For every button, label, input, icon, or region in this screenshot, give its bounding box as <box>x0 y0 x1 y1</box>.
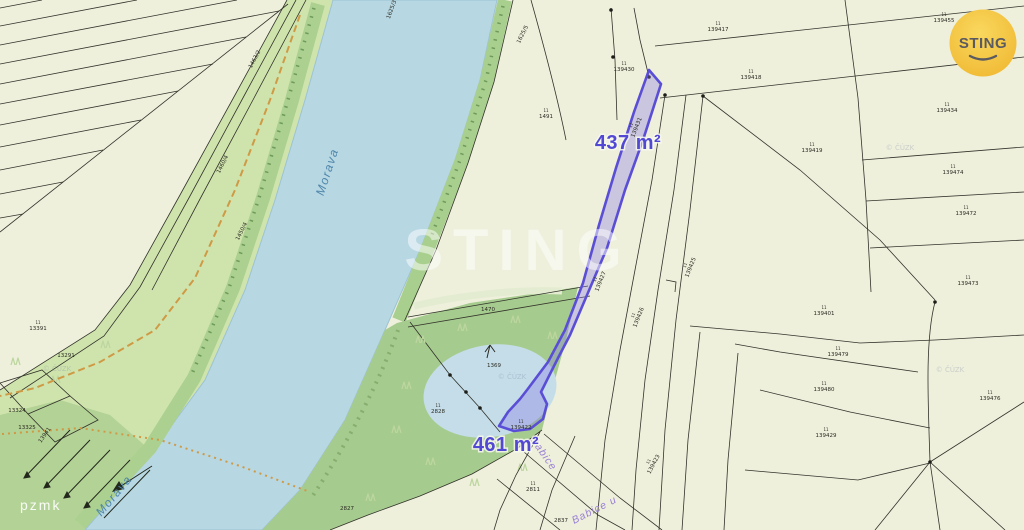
parcel-number: 13291 <box>57 353 75 359</box>
parcel-landuse-mark: 11 <box>941 12 947 17</box>
parcel-number-text: 139401 <box>814 311 835 317</box>
parcel-number-text: 2827 <box>340 506 354 512</box>
parcel-number-text: 139472 <box>956 211 977 217</box>
parcel-number-text: 139480 <box>814 387 835 393</box>
parcel-number-text: 1491 <box>539 114 553 120</box>
parcel-landuse-mark: 11 <box>35 320 41 325</box>
parcel-number-text: 139429 <box>816 433 837 439</box>
area-label-461: 461 m² <box>473 434 539 456</box>
parcel-number-text: 13291 <box>57 353 75 359</box>
parcel-landuse-mark: 11 <box>987 390 993 395</box>
copyright-watermark: © ČÚZK <box>43 364 72 373</box>
parcel-landuse-mark: 11 <box>621 61 627 66</box>
parcel-landuse-mark: 11 <box>821 381 827 386</box>
corner-text-pzmk: pzmk <box>20 497 61 513</box>
parcel-landuse-mark: 11 <box>518 419 524 424</box>
parcel-number-text: 13391 <box>29 326 47 332</box>
parcel-number-text: 2837 <box>554 518 568 524</box>
survey-point <box>464 390 468 394</box>
sting-watermark: STING <box>404 218 631 283</box>
parcel-number: 2837 <box>554 518 568 524</box>
copyright-watermark: © ČÚZK <box>498 372 527 381</box>
sting-logo: STING <box>950 10 1017 77</box>
parcel-number-text: 1369 <box>487 363 501 369</box>
parcel-number-text: 139418 <box>741 75 762 81</box>
parcel-number: 1369 <box>487 363 501 369</box>
parcel-landuse-mark: 11 <box>835 346 841 351</box>
parcel-landuse-mark: 11 <box>809 142 815 147</box>
parcel-number: 2827 <box>340 506 354 512</box>
parcel-number-text: 139476 <box>980 396 1001 402</box>
parcel-landuse-mark: 11 <box>748 69 754 74</box>
parcel-landuse-mark: 11 <box>963 205 969 210</box>
copyright-watermark: © ČÚZK <box>936 365 965 374</box>
parcel-number-text: 13324 <box>8 408 26 414</box>
parcel-number: 13325 <box>18 425 36 431</box>
parcel-landuse-mark: 11 <box>821 305 827 310</box>
map-viewport[interactable]: 1394551113941711139418111394191113943411… <box>0 0 1024 530</box>
parcel-landuse-mark: 11 <box>543 108 549 113</box>
parcel-number-text: 139434 <box>937 108 958 114</box>
parcel-number-text: 139474 <box>943 170 964 176</box>
parcel-number-text: 139473 <box>958 281 979 287</box>
parcel-number: 1470 <box>481 307 495 313</box>
area-label-437: 437 m² <box>595 132 661 154</box>
parcel-landuse-mark: 11 <box>715 21 721 26</box>
parcel-landuse-mark: 11 <box>435 403 441 408</box>
parcel-landuse-mark: 11 <box>823 427 829 432</box>
parcel-number-text: 139430 <box>614 67 635 73</box>
parcel-number: 13324 <box>8 408 26 414</box>
parcel-number-text: 2828 <box>431 409 445 415</box>
parcel-number-text: 139455 <box>934 18 955 24</box>
parcel-number-text: 13325 <box>18 425 36 431</box>
parcel-number-text: 1470 <box>481 307 495 313</box>
parcel-number-text: 139419 <box>802 148 823 154</box>
parcel-number-text: 2811 <box>526 487 540 493</box>
parcel-landuse-mark: 11 <box>530 481 536 486</box>
copyright-watermark: © ČÚZK <box>886 143 915 152</box>
parcel-landuse-mark: 11 <box>944 102 950 107</box>
parcel-landuse-mark: 11 <box>950 164 956 169</box>
cadastral-map-canvas[interactable]: 1394551113941711139418111394191113943411… <box>0 0 1024 530</box>
sting-logo-text: STING <box>959 35 1007 52</box>
survey-point <box>448 373 452 377</box>
parcel-landuse-mark: 11 <box>965 275 971 280</box>
survey-point <box>478 406 482 410</box>
parcel-number-text: 139479 <box>828 352 849 358</box>
parcel-number-text: 139417 <box>708 27 729 33</box>
parcel-number-text: 139422 <box>511 425 532 431</box>
